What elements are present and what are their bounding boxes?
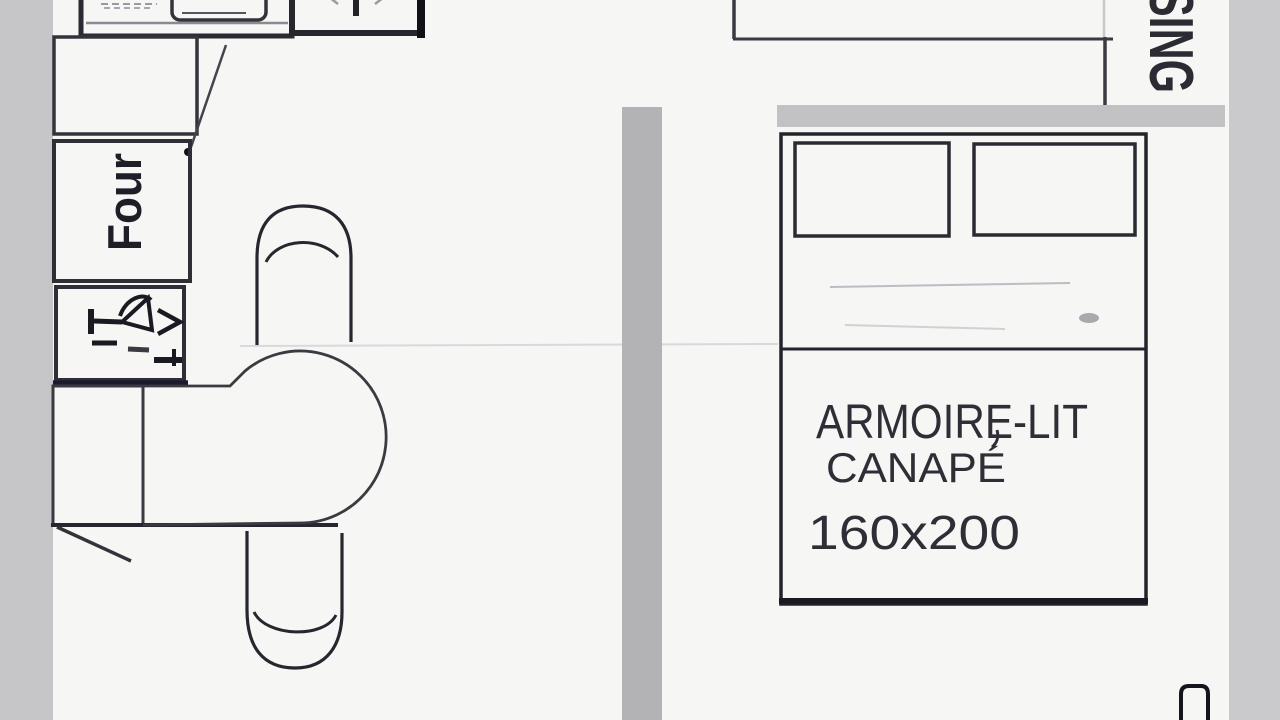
svg-text:SING: SING <box>1136 0 1205 93</box>
svg-text:CANAPÉ: CANAPÉ <box>826 444 1006 491</box>
svg-text:ARMOIRE-LIT: ARMOIRE-LIT <box>816 396 1088 449</box>
svg-text:160x200: 160x200 <box>808 507 1020 560</box>
svg-text:Four: Four <box>98 153 151 251</box>
